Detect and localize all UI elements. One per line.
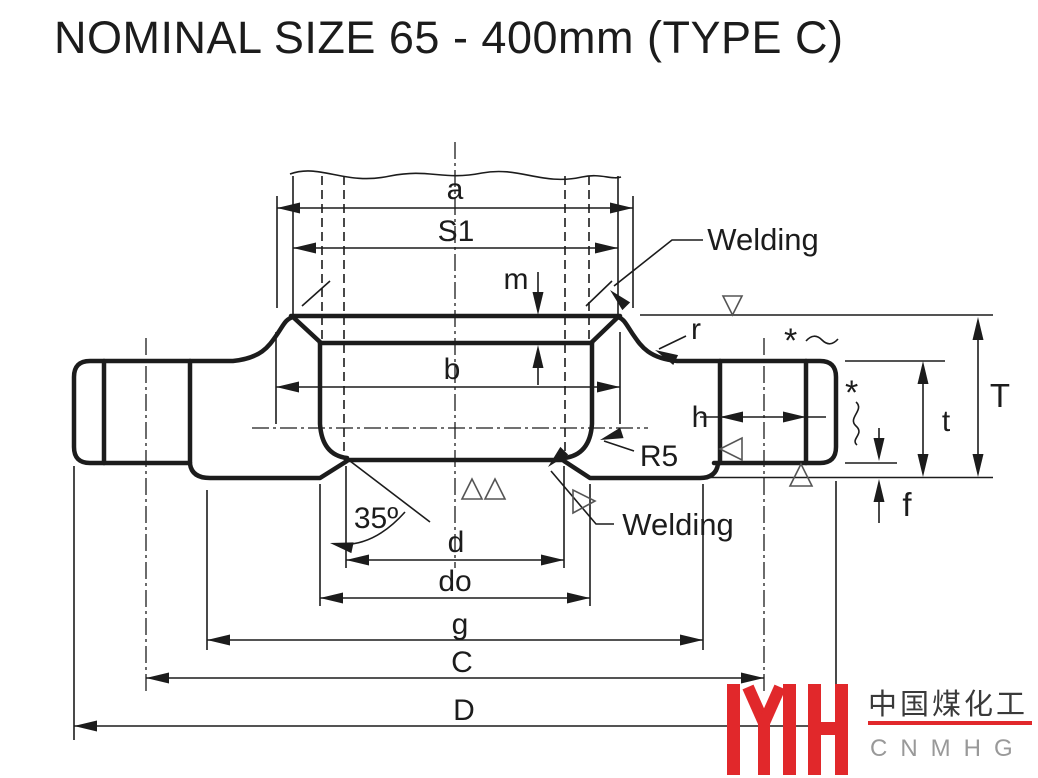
drawing-page: NOMINAL SIZE 65 - 400mm (TYPE C) (0, 0, 1038, 778)
dimension-s1: S1 (293, 215, 618, 254)
dim-label-a: a (447, 173, 464, 206)
finish-triangle-pair-icon (462, 479, 482, 499)
extension-lines (74, 196, 993, 740)
dim-label-do: do (438, 565, 471, 598)
dimension-f: f (874, 428, 913, 523)
welding-bottom-label: Welding (622, 507, 733, 542)
finish-triangle-top-icon (723, 296, 742, 315)
dim-label-r5: R5 (640, 440, 678, 473)
dim-label-t: t (942, 405, 951, 438)
dim-label-f: f (902, 486, 912, 523)
dimension-angle-35: 35º (329, 461, 430, 553)
dim-label-g: g (452, 608, 469, 641)
dim-label-35: 35º (354, 502, 398, 535)
dim-label-s1: S1 (438, 215, 475, 248)
dimension-t: t (918, 361, 951, 477)
logo-chinese-text: 中国煤化工 (868, 688, 1028, 721)
dimension-g: g (207, 608, 703, 646)
dimension-dcap: D (74, 694, 836, 732)
dimension-m: m (504, 263, 544, 385)
dim-label-d: d (448, 526, 465, 559)
finish-triangle-pair-icon (485, 479, 505, 499)
star-top: * (784, 322, 797, 360)
dim-label-c: C (451, 646, 473, 679)
welding-top-label: Welding (707, 222, 818, 257)
dim-label-m: m (504, 263, 529, 296)
left-rim-section (74, 361, 104, 463)
dim-label-b: b (444, 353, 461, 386)
finish-triangle-up-icon (790, 464, 812, 486)
right-rim-section (806, 361, 836, 463)
radius-r5-note: R5 (598, 428, 678, 473)
dim-label-dcap: D (453, 694, 475, 727)
dimension-b: b (276, 353, 620, 393)
dim-label-h: h (692, 401, 709, 434)
surface-finish-symbols (462, 296, 812, 513)
logo-underline (868, 721, 1032, 725)
logo-mark (727, 684, 848, 775)
logo-latin-text: CNMHG (870, 735, 1026, 762)
company-logo: 中国煤化工 CNMHG (727, 684, 1032, 775)
flange-section-drawing: a S1 m b h (0, 0, 1038, 778)
dimension-a: a (277, 173, 633, 214)
welding-top-note: Welding (606, 222, 819, 310)
dimension-c: C (146, 646, 764, 684)
finish-triangle-left-icon (720, 438, 742, 460)
star-right: * (845, 374, 858, 412)
star-tilde-marks: * * (784, 322, 859, 445)
dimension-tcap: T (973, 317, 1011, 477)
dim-label-tcap: T (990, 377, 1010, 414)
dim-label-r: r (691, 313, 701, 346)
dimension-do: do (320, 565, 590, 604)
